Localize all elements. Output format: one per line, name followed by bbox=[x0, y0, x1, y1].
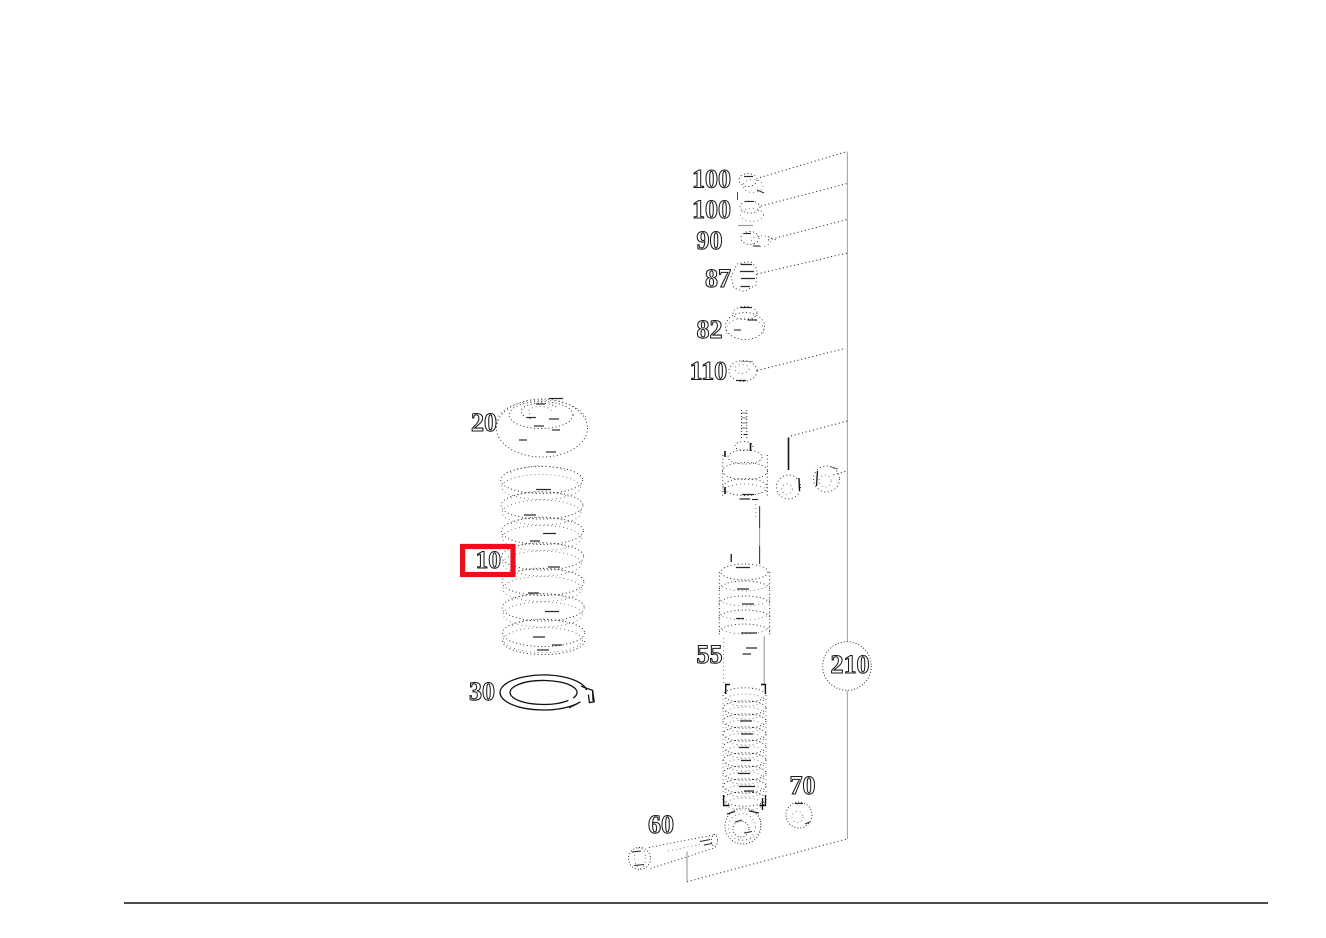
svg-text:87: 87 bbox=[705, 264, 731, 293]
svg-text:82: 82 bbox=[697, 315, 723, 344]
svg-text:90: 90 bbox=[697, 226, 723, 255]
svg-text:10: 10 bbox=[476, 545, 502, 574]
svg-text:55: 55 bbox=[697, 640, 723, 669]
svg-text:100: 100 bbox=[692, 164, 731, 193]
svg-text:20: 20 bbox=[471, 408, 497, 437]
svg-text:70: 70 bbox=[790, 771, 816, 800]
svg-text:60: 60 bbox=[648, 810, 674, 839]
svg-text:30: 30 bbox=[469, 677, 495, 706]
svg-text:110: 110 bbox=[690, 356, 728, 385]
svg-text:210: 210 bbox=[831, 650, 870, 679]
svg-text:100: 100 bbox=[692, 195, 731, 224]
